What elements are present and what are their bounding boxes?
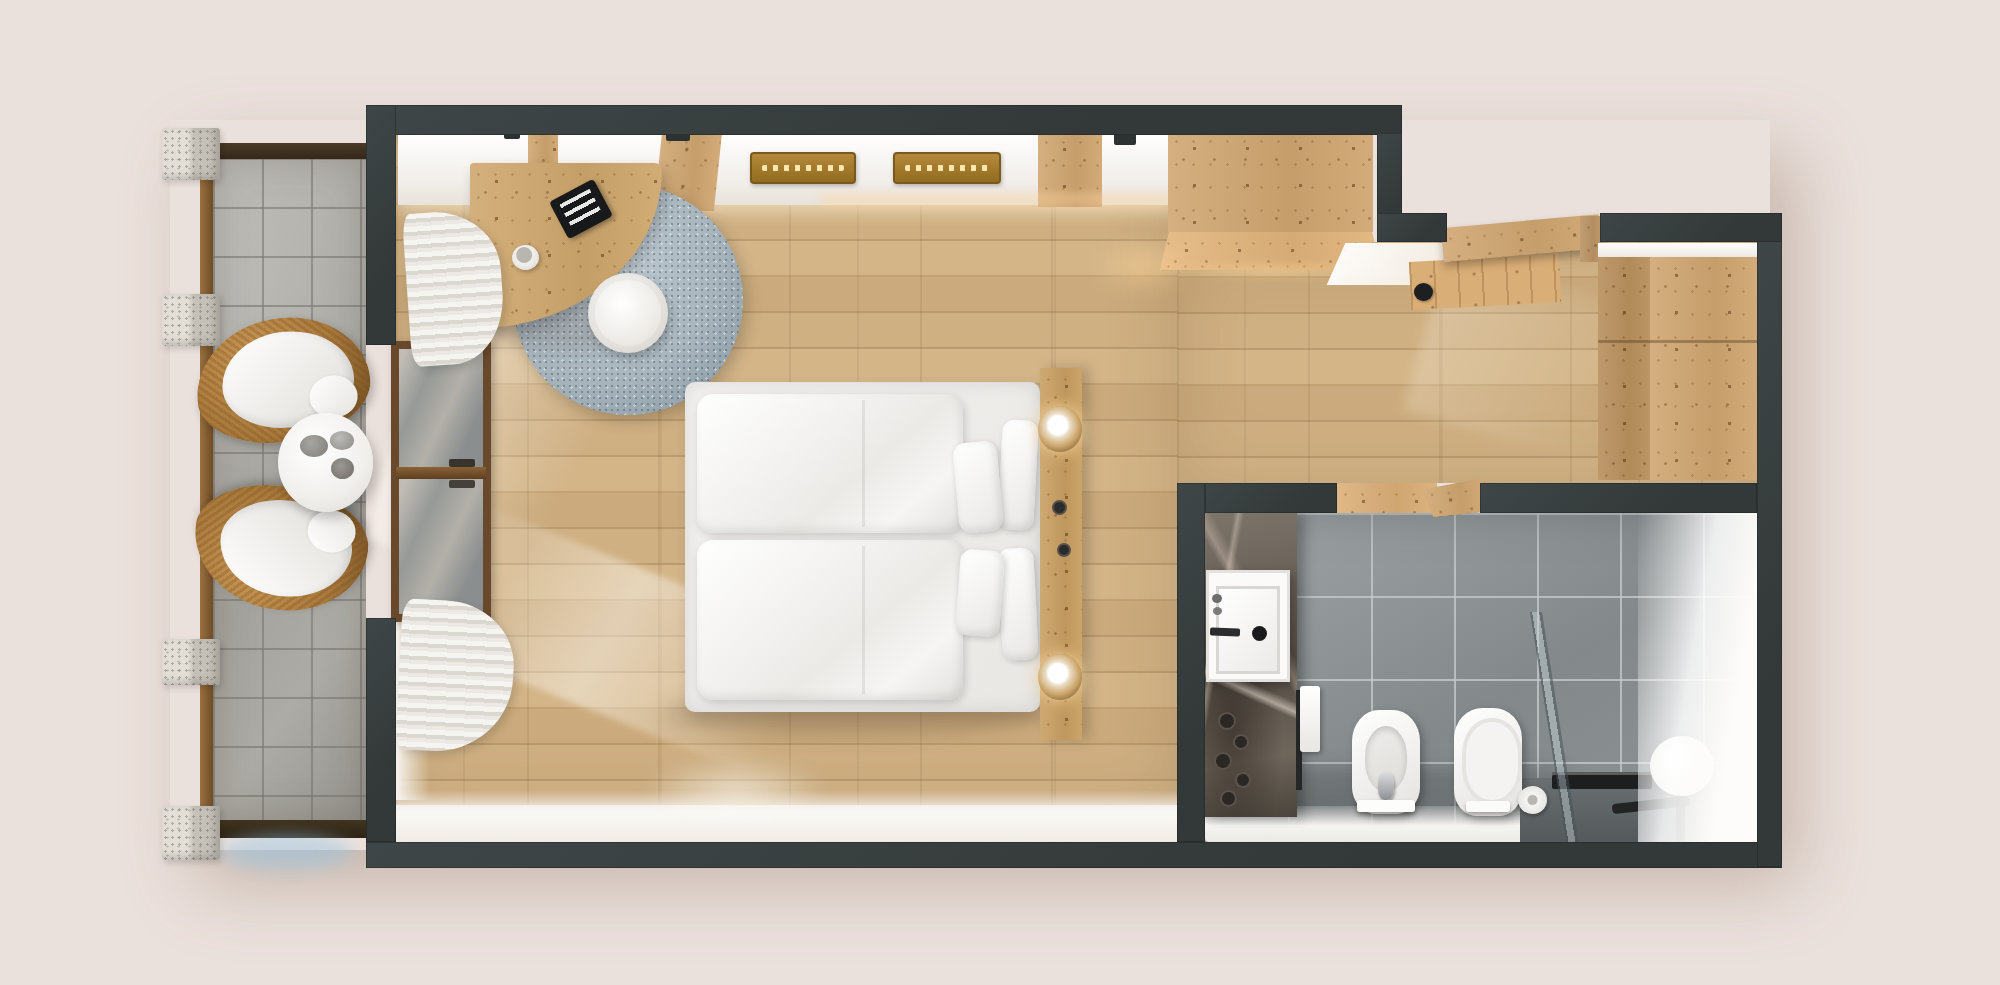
wall-bath-top-left: [1205, 483, 1337, 513]
duvet-bottom: [697, 540, 963, 700]
pillow-small-bottom: [955, 549, 1005, 638]
wardrobe-front-face: [1650, 257, 1757, 480]
sink-soap-dot-1: [1212, 594, 1222, 603]
headboard-knob-1: [1052, 500, 1067, 515]
stone-pillar-1: [162, 128, 220, 180]
stone-pillar-3: [162, 639, 220, 685]
shower-control-5: [1220, 790, 1237, 807]
balcony-region: [140, 100, 380, 890]
shower-control-2: [1233, 734, 1249, 750]
wall-bath-left: [1177, 483, 1205, 842]
reading-lamp-top: [1038, 406, 1082, 452]
cabinet-top-face: [1168, 130, 1373, 232]
shower-control-4: [1235, 772, 1251, 788]
wall-bath-top-right: [1480, 483, 1757, 513]
pillow-large-top: [997, 419, 1039, 531]
shower-control-1: [1218, 712, 1236, 730]
balcony-sliding-door: [391, 341, 491, 622]
glass-pane-bottom: [399, 479, 483, 614]
laptop-screen-lines: [559, 189, 602, 230]
duvet-crease: [862, 546, 865, 693]
wood-tray-1: [750, 152, 856, 184]
kettle: [1414, 283, 1433, 301]
table-cup: [331, 458, 354, 479]
wall-top-right: [1600, 213, 1782, 242]
tray-carving: [905, 165, 988, 172]
reading-lamp-bottom: [1038, 654, 1082, 700]
wardrobe: [1598, 243, 1757, 480]
tray-carving: [762, 165, 844, 172]
pouf: [588, 273, 668, 353]
table-bowl-1: [300, 435, 328, 457]
floorplan-canvas: [0, 0, 2000, 985]
sink-soap-bar: [1210, 627, 1240, 636]
wardrobe-side-face: [1598, 257, 1650, 480]
shower-control-3: [1214, 752, 1232, 770]
bath-door-sill: [1337, 483, 1437, 513]
door-mid-rail: [396, 467, 486, 479]
vanity-sink: [1206, 570, 1290, 682]
bidet-tap: [1378, 772, 1394, 800]
wood-tray-2: [893, 152, 1001, 184]
towel: [1300, 686, 1320, 752]
door-handle-1: [449, 459, 475, 467]
stone-pillar-4: [162, 806, 220, 860]
balcony-beam-top: [213, 143, 366, 159]
bench-plank-3: [1038, 131, 1102, 207]
entry-door-mat: [1409, 254, 1561, 310]
pillow-small-top: [952, 440, 1004, 533]
wall-top: [366, 105, 1402, 135]
lit-strip-bottom: [396, 790, 1177, 842]
duvet-top: [697, 394, 963, 533]
wall-left-upper: [366, 105, 396, 345]
balcony-table: [278, 413, 373, 512]
sink-faucet: [1252, 626, 1267, 641]
door-handle-2: [449, 480, 475, 488]
wall-right: [1757, 240, 1782, 867]
desk-cup: [512, 245, 539, 270]
headboard-knob-2: [1057, 543, 1071, 557]
toilet-seat: [1462, 718, 1522, 804]
bidet-base: [1357, 800, 1415, 812]
wall-bottom: [366, 842, 1782, 868]
duvet-crease: [862, 400, 865, 528]
toilet-base: [1466, 801, 1510, 812]
round-mirror: [1650, 736, 1714, 796]
wall-left-lower: [366, 618, 396, 842]
water-shadow: [222, 834, 352, 870]
bidet: [1352, 710, 1420, 814]
paper-roll: [1518, 786, 1547, 814]
glass-pane-top: [399, 349, 483, 467]
wardrobe-seam: [1598, 340, 1757, 343]
table-bowl-2: [330, 431, 354, 450]
toilet: [1454, 708, 1522, 816]
sink-soap-dot-2: [1213, 607, 1222, 615]
wall-entry-stub: [1377, 213, 1447, 242]
